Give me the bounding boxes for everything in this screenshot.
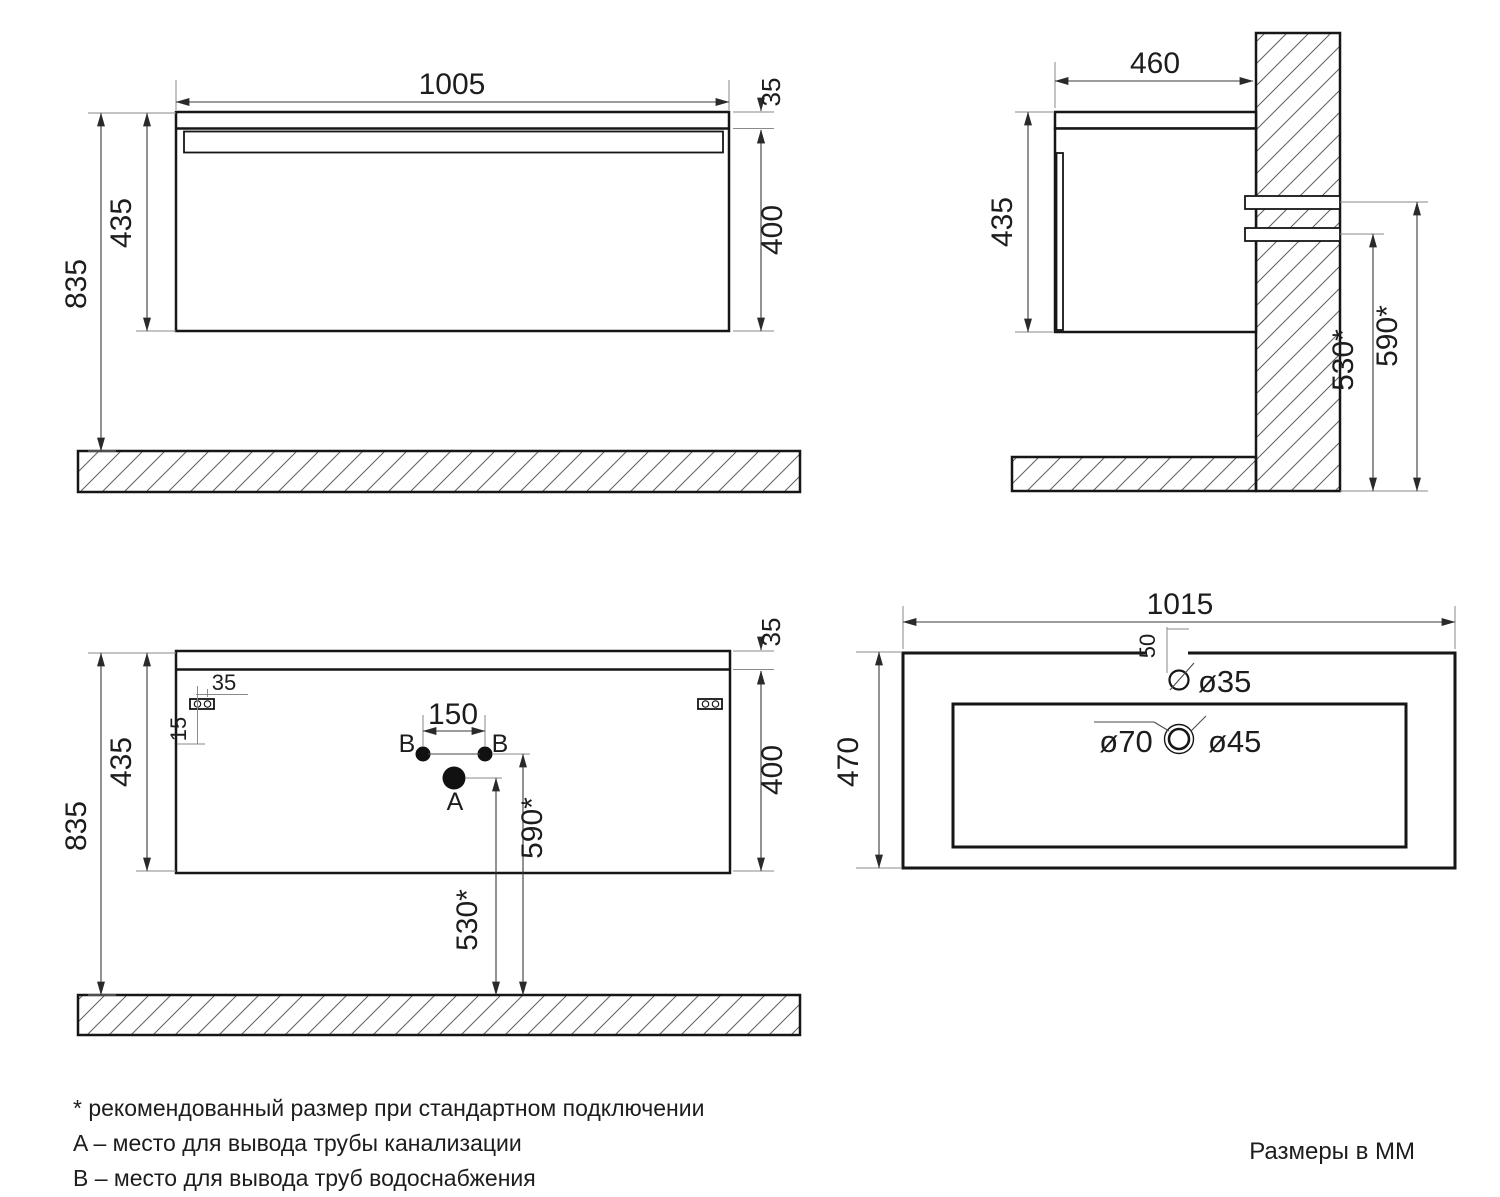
drain-inner-dia-label: ø45 xyxy=(1208,724,1261,759)
side-drain-height-label: 530* xyxy=(1327,329,1360,391)
dim-back-cabinet-height: 435 xyxy=(105,653,176,871)
front-view: 1005 835 435 35 400 xyxy=(60,68,800,492)
water-pipe-upper xyxy=(1245,196,1340,209)
back-panel-height-label: 400 xyxy=(756,745,789,795)
floor-section xyxy=(1012,457,1256,491)
footnote-hole-a: A – место для вывода трубы канализации xyxy=(73,1130,522,1156)
front-floor-height-label: 835 xyxy=(60,259,93,309)
water-hole-spacing-label: 150 xyxy=(428,698,478,731)
faucet-offset-label: 50 xyxy=(1135,634,1160,658)
handle-groove xyxy=(184,132,723,153)
dim-side-water-height: 590* xyxy=(1371,202,1417,491)
hole-a-label: A xyxy=(447,788,464,816)
cabinet-side-outline xyxy=(1055,129,1256,333)
dim-basin-width: 1015 xyxy=(903,588,1455,649)
basin-depth-label: 470 xyxy=(832,737,865,787)
mounting-bracket-right xyxy=(698,699,722,709)
side-water-height-label: 590* xyxy=(1371,305,1404,367)
dim-side-cabinet-height: 435 xyxy=(986,112,1053,332)
top-view: ø35 50 ø70 ø45 1015 470 xyxy=(832,588,1455,868)
back-view: 35 15 B B A 150 530* 590* xyxy=(60,618,800,1035)
mounting-bracket-left xyxy=(190,699,214,709)
dim-back-floor-height: 835 xyxy=(60,653,176,995)
footnote-hole-b: B – место для вывода труб водоснабжения xyxy=(73,1165,536,1191)
bracket-offset-label: 15 xyxy=(166,717,191,741)
dim-front-floor-height: 835 xyxy=(60,113,176,451)
cabinet-back-outline xyxy=(176,651,730,873)
vanity-dimension-drawing: 1005 835 435 35 400 xyxy=(0,0,1500,1197)
dim-back-top-thickness: 35 xyxy=(733,618,786,684)
bracket-hole-spacing-label: 35 xyxy=(212,670,236,695)
floor-section xyxy=(78,451,800,492)
back-cabinet-height-label: 435 xyxy=(105,737,138,787)
dim-front-width: 1005 xyxy=(176,68,729,110)
back-drain-height-label: 530* xyxy=(451,889,484,951)
back-floor-height-label: 835 xyxy=(60,801,93,851)
back-top-thickness-label: 35 xyxy=(756,618,786,647)
wall-section xyxy=(1256,33,1340,491)
dim-front-top-thickness: 35 xyxy=(733,78,786,143)
dim-back-panel-height: 400 xyxy=(733,671,789,871)
floor-section xyxy=(78,995,800,1035)
front-top-thickness-label: 35 xyxy=(756,78,786,107)
dim-side-depth: 460 xyxy=(1055,47,1253,108)
dim-front-cabinet-height: 435 xyxy=(105,113,176,331)
side-cabinet-height-label: 435 xyxy=(986,197,1019,247)
footnotes: * рекомендованный размер при стандартном… xyxy=(73,1095,1415,1191)
footnote-asterisk: * рекомендованный размер при стандартном… xyxy=(73,1095,704,1121)
drain-outer-dia-label: ø70 xyxy=(1099,724,1152,759)
basin-width-label: 1015 xyxy=(1147,588,1214,621)
dim-basin-depth: 470 xyxy=(832,652,901,868)
hole-b-left-label: B xyxy=(399,730,416,758)
countertop-side xyxy=(1055,112,1256,129)
front-width-label: 1005 xyxy=(419,68,486,101)
drain-hole-a xyxy=(443,767,466,790)
dim-front-panel-height: 400 xyxy=(733,130,789,331)
drawer-front-edge xyxy=(1057,153,1064,330)
units-label: Размеры в ММ xyxy=(1249,1138,1415,1165)
technical-drawing-page: 1005 835 435 35 400 xyxy=(0,0,1500,1197)
back-water-height-label: 590* xyxy=(516,797,549,859)
side-view: 460 435 530* 590* xyxy=(986,33,1428,491)
side-depth-label: 460 xyxy=(1130,47,1180,80)
water-pipe-lower xyxy=(1245,228,1340,241)
faucet-dia-label: ø35 xyxy=(1198,664,1251,699)
front-cabinet-height-label: 435 xyxy=(105,198,138,248)
front-panel-height-label: 400 xyxy=(756,205,789,255)
